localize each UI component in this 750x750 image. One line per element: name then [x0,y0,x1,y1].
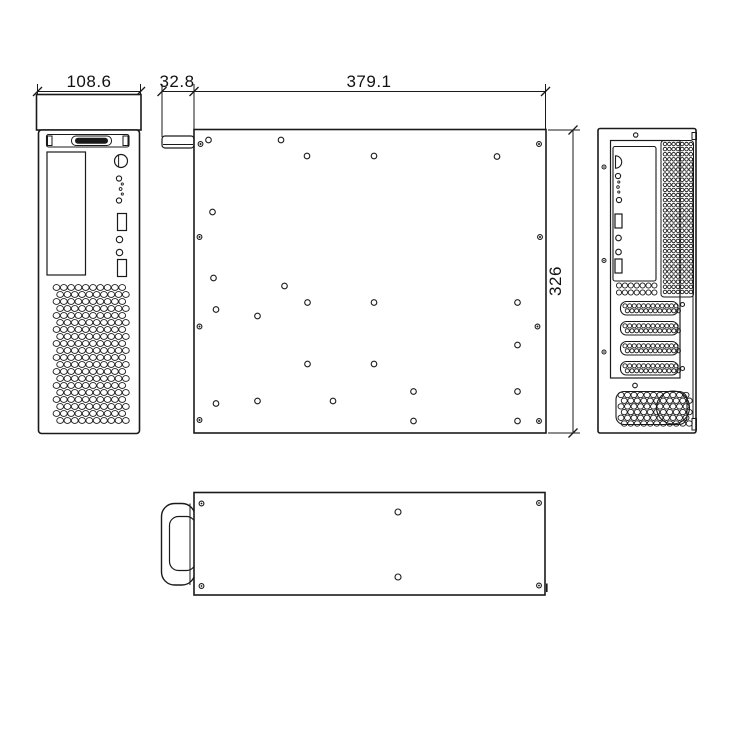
dimension-label-front-width: 108.6 [66,72,111,91]
side-mount-tab [162,136,194,148]
edge-screw-center [603,166,605,168]
dimension-label-body-height: 326 [546,266,565,296]
corner-screw-center [538,585,540,587]
corner-screw-center [201,585,203,587]
edge-screw-center [603,351,605,353]
dimension-front-width: 108.6 [33,72,145,96]
edge-screw-center [539,236,541,238]
psu-vent-grille [618,392,692,426]
top-view [162,493,547,596]
side-panel-outline [194,130,546,434]
corner-screw-center [538,502,540,504]
dimension-label-handle-depth: 32.8 [159,72,194,91]
edge-screw-center [537,326,539,328]
rear-view [598,129,697,434]
dimension-handle-depth: 32.8 [158,72,199,137]
technical-drawing-canvas: 108.6 32.8 379.1 326 [0,0,750,750]
dimension-body-height: 326 [546,126,580,438]
edge-screw-center [199,236,201,238]
drawing-page: 108.6 32.8 379.1 326 [0,0,750,750]
corner-screw-center [201,503,203,505]
front-view [37,95,142,434]
front-top-cap [37,95,142,131]
edge-screw-center [538,420,540,422]
brand-logo-icon [75,138,108,144]
side-view [162,130,546,434]
dimension-label-body-length: 379.1 [346,72,391,91]
top-panel-outline [194,493,545,596]
edge-screw-center [200,143,202,145]
edge-screw-center [199,419,201,421]
dimension-body-length: 379.1 [194,72,550,129]
edge-screw-center [199,326,201,328]
edge-screw-center [603,260,605,262]
edge-screw-center [538,143,540,145]
